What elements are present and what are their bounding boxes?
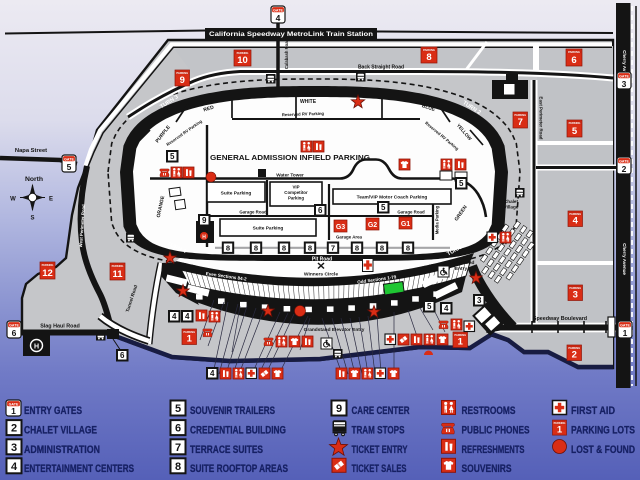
svg-text:4: 4 bbox=[276, 13, 281, 23]
svg-text:H: H bbox=[202, 235, 206, 241]
svg-text:FIRST AID: FIRST AID bbox=[571, 405, 615, 417]
svg-text:5: 5 bbox=[175, 403, 181, 415]
svg-text:4: 4 bbox=[210, 369, 215, 378]
svg-text:3: 3 bbox=[573, 290, 578, 301]
svg-text:7: 7 bbox=[175, 442, 181, 454]
svg-text:8: 8 bbox=[175, 461, 181, 473]
svg-text:TICKET ENTRY: TICKET ENTRY bbox=[352, 444, 408, 456]
svg-text:GATE: GATE bbox=[9, 323, 19, 327]
svg-text:GENERAL ADMISSION INFIELD PARK: GENERAL ADMISSION INFIELD PARKING bbox=[210, 155, 371, 162]
svg-text:PARKING: PARKING bbox=[42, 263, 54, 267]
svg-text:5: 5 bbox=[67, 162, 72, 172]
svg-text:4: 4 bbox=[185, 312, 190, 321]
svg-text:6: 6 bbox=[120, 351, 125, 360]
svg-text:Pit Road: Pit Road bbox=[312, 257, 332, 263]
svg-text:PARKING: PARKING bbox=[423, 48, 435, 52]
svg-text:4: 4 bbox=[11, 461, 18, 473]
svg-text:10: 10 bbox=[237, 55, 248, 66]
svg-text:9: 9 bbox=[336, 403, 342, 415]
svg-text:TERRACE SUITES: TERRACE SUITES bbox=[190, 444, 263, 456]
svg-text:SOUVENIRS: SOUVENIRS bbox=[462, 463, 512, 475]
svg-text:North: North bbox=[25, 176, 43, 183]
svg-text:PARKING: PARKING bbox=[237, 51, 249, 55]
svg-text:GATE: GATE bbox=[64, 157, 74, 161]
svg-text:Slag Haul Road: Slag Haul Road bbox=[40, 324, 80, 330]
svg-text:VIP: VIP bbox=[292, 185, 299, 190]
svg-text:8: 8 bbox=[406, 243, 410, 252]
svg-text:4: 4 bbox=[444, 304, 449, 313]
svg-text:12: 12 bbox=[42, 268, 53, 279]
svg-text:Village: Village bbox=[504, 205, 519, 210]
svg-text:5: 5 bbox=[381, 203, 386, 212]
svg-text:6: 6 bbox=[571, 55, 576, 66]
svg-text:5: 5 bbox=[427, 302, 432, 311]
svg-text:W: W bbox=[10, 197, 16, 203]
svg-text:GATE: GATE bbox=[620, 323, 630, 327]
svg-text:Napa Street: Napa Street bbox=[15, 148, 47, 154]
svg-text:PARKING: PARKING bbox=[112, 264, 124, 268]
svg-text:ENTERTAINMENT CENTERS: ENTERTAINMENT CENTERS bbox=[24, 463, 134, 475]
svg-text:East Perimeter Road: East Perimeter Road bbox=[539, 97, 544, 140]
svg-text:TRAM STOPS: TRAM STOPS bbox=[352, 425, 405, 437]
svg-text:7: 7 bbox=[331, 243, 335, 252]
svg-text:3: 3 bbox=[622, 79, 627, 89]
svg-text:8: 8 bbox=[426, 52, 431, 63]
svg-text:CREDENTIAL BUILDING: CREDENTIAL BUILDING bbox=[190, 425, 286, 437]
svg-text:RESTROOMS: RESTROOMS bbox=[462, 405, 516, 417]
svg-text:GATE: GATE bbox=[619, 159, 629, 163]
svg-text:2: 2 bbox=[572, 350, 577, 361]
svg-text:Cherry Avenue: Cherry Avenue bbox=[622, 243, 627, 275]
svg-text:Speedway Boulevard: Speedway Boulevard bbox=[533, 316, 587, 322]
svg-text:LOST & FOUND: LOST & FOUND bbox=[571, 444, 635, 456]
svg-text:8: 8 bbox=[254, 243, 258, 252]
svg-text:9: 9 bbox=[180, 75, 185, 86]
svg-text:5: 5 bbox=[572, 126, 578, 137]
svg-text:5: 5 bbox=[170, 152, 175, 161]
svg-text:WHITE: WHITE bbox=[300, 99, 317, 105]
svg-text:Garage Road: Garage Road bbox=[239, 210, 267, 215]
svg-text:California Speedway MetroLink: California Speedway MetroLink Train Stat… bbox=[209, 32, 373, 38]
svg-text:G3: G3 bbox=[336, 224, 345, 231]
svg-text:G1: G1 bbox=[401, 221, 410, 228]
svg-text:2: 2 bbox=[11, 423, 17, 435]
svg-text:5: 5 bbox=[459, 179, 464, 188]
svg-text:Calabash Road: Calabash Road bbox=[284, 38, 289, 69]
svg-text:6: 6 bbox=[12, 328, 17, 338]
svg-text:CARE CENTER: CARE CENTER bbox=[352, 405, 410, 417]
svg-text:3: 3 bbox=[11, 442, 17, 454]
svg-text:Winners Circle: Winners Circle bbox=[304, 272, 338, 278]
svg-text:11: 11 bbox=[112, 269, 123, 280]
svg-text:PARKING: PARKING bbox=[176, 71, 188, 75]
svg-text:Grandstand: Grandstand bbox=[448, 260, 475, 266]
svg-text:2: 2 bbox=[622, 164, 627, 174]
svg-text:TICKET SALES: TICKET SALES bbox=[352, 463, 407, 475]
svg-text:SOUVENIR TRAILERS: SOUVENIR TRAILERS bbox=[190, 405, 275, 417]
svg-text:1: 1 bbox=[623, 328, 628, 338]
svg-text:8: 8 bbox=[308, 243, 312, 252]
svg-text:1: 1 bbox=[187, 334, 193, 345]
svg-text:CHALET VILLAGE: CHALET VILLAGE bbox=[24, 425, 97, 437]
svg-text:Garage Road: Garage Road bbox=[397, 210, 425, 215]
svg-text:6: 6 bbox=[318, 206, 323, 215]
svg-text:Garage Area: Garage Area bbox=[336, 235, 363, 240]
svg-text:1: 1 bbox=[557, 424, 563, 435]
svg-text:Suite Parking: Suite Parking bbox=[253, 226, 284, 232]
svg-text:PARKING: PARKING bbox=[568, 50, 580, 54]
svg-text:PARKING LOTS: PARKING LOTS bbox=[571, 425, 635, 437]
svg-text:REFRESHMENTS: REFRESHMENTS bbox=[462, 444, 525, 456]
svg-text:PARKING: PARKING bbox=[569, 121, 581, 125]
svg-text:Grandstand Elevator Entry: Grandstand Elevator Entry bbox=[304, 327, 365, 333]
svg-text:SUITE ROOFTOP AREAS: SUITE ROOFTOP AREAS bbox=[190, 463, 288, 475]
svg-text:Competitor: Competitor bbox=[284, 190, 308, 195]
svg-text:Parking: Parking bbox=[288, 196, 304, 201]
svg-text:H: H bbox=[34, 344, 39, 351]
svg-text:GATE: GATE bbox=[619, 74, 629, 78]
svg-text:Suite Parking: Suite Parking bbox=[221, 191, 252, 197]
svg-text:4: 4 bbox=[573, 216, 579, 227]
svg-text:PARKING: PARKING bbox=[514, 113, 526, 117]
svg-text:ADMINISTRATION: ADMINISTRATION bbox=[24, 444, 100, 456]
svg-text:8: 8 bbox=[226, 243, 230, 252]
svg-text:E: E bbox=[49, 197, 53, 203]
svg-text:PUBLIC PHONES: PUBLIC PHONES bbox=[462, 425, 530, 437]
svg-text:Entry: Entry bbox=[455, 266, 468, 272]
svg-text:G2: G2 bbox=[368, 222, 377, 229]
svg-text:1: 1 bbox=[458, 337, 464, 348]
svg-text:GATE: GATE bbox=[273, 8, 283, 12]
svg-text:1: 1 bbox=[11, 406, 16, 416]
svg-text:Chalet: Chalet bbox=[504, 199, 519, 204]
svg-text:9: 9 bbox=[202, 216, 207, 225]
svg-text:8: 8 bbox=[380, 243, 384, 252]
svg-text:8: 8 bbox=[355, 243, 359, 252]
svg-text:7: 7 bbox=[518, 117, 523, 128]
svg-text:S: S bbox=[30, 216, 34, 222]
svg-text:Team/VIP Motor Coach Parking: Team/VIP Motor Coach Parking bbox=[357, 195, 428, 201]
svg-text:Back Straight Road: Back Straight Road bbox=[358, 65, 404, 71]
svg-text:4: 4 bbox=[172, 312, 177, 321]
svg-text:8: 8 bbox=[282, 243, 286, 252]
svg-text:Water Tower: Water Tower bbox=[276, 173, 304, 178]
svg-text:3: 3 bbox=[477, 296, 482, 305]
svg-text:ENTRY GATES: ENTRY GATES bbox=[24, 405, 82, 417]
svg-text:Media Parking: Media Parking bbox=[435, 205, 440, 234]
svg-text:6: 6 bbox=[175, 423, 181, 435]
